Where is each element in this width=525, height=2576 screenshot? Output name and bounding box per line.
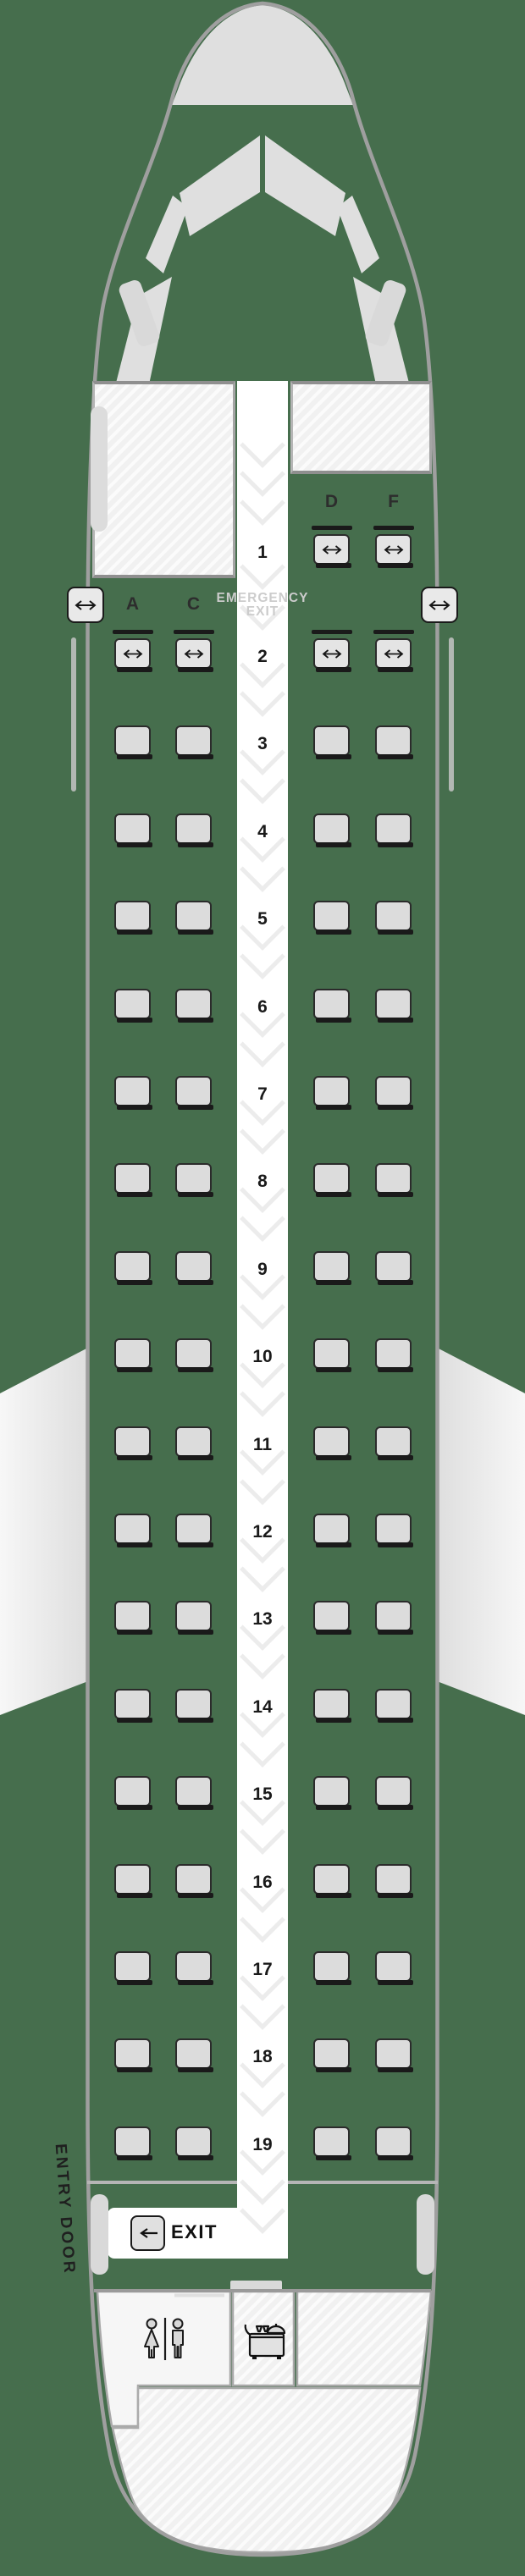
front-galley-right	[290, 381, 432, 474]
galley-cart-icon	[242, 2318, 291, 2366]
seat-7C[interactable]	[175, 1076, 212, 1106]
seat-10F[interactable]	[375, 1338, 412, 1369]
seat-5F[interactable]	[375, 901, 412, 931]
right-wing	[437, 1348, 525, 1715]
rear-left-door-flap	[91, 2194, 108, 2275]
front-galley-door-tab	[91, 406, 108, 532]
bulkhead-divider	[373, 526, 414, 530]
seat-10A[interactable]	[114, 1338, 151, 1369]
seat-15F[interactable]	[375, 1776, 412, 1807]
seat-2D[interactable]	[313, 638, 350, 669]
seat-6D[interactable]	[313, 989, 350, 1019]
bulkhead-divider	[312, 526, 352, 530]
seat-17D[interactable]	[313, 1951, 350, 1982]
seat-4A[interactable]	[114, 814, 151, 844]
row-number-10: 10	[237, 1347, 288, 1367]
seat-12D[interactable]	[313, 1514, 350, 1544]
seat-1D[interactable]	[313, 534, 350, 565]
seat-8F[interactable]	[375, 1163, 412, 1194]
seat-3A[interactable]	[114, 725, 151, 756]
left-wing	[0, 1348, 88, 1715]
seat-19C[interactable]	[175, 2126, 212, 2157]
double-arrow-icon	[383, 544, 405, 555]
lavatory-icon	[141, 2316, 193, 2368]
nose-cone	[172, 5, 353, 105]
seat-10C[interactable]	[175, 1338, 212, 1369]
row-number-9: 9	[237, 1260, 288, 1280]
left-arrow-icon	[137, 2227, 159, 2239]
seat-4D[interactable]	[313, 814, 350, 844]
column-label-D: D	[319, 492, 345, 512]
column-label-A: A	[120, 594, 146, 615]
seat-5D[interactable]	[313, 901, 350, 931]
seat-5A[interactable]	[114, 901, 151, 931]
seat-11A[interactable]	[114, 1426, 151, 1457]
seat-2A[interactable]	[114, 638, 151, 669]
seat-9A[interactable]	[114, 1251, 151, 1282]
emergency-exit-label-line1: EMERGENCY	[195, 592, 330, 605]
row-number-16: 16	[237, 1873, 288, 1893]
seat-12C[interactable]	[175, 1514, 212, 1544]
seat-14D[interactable]	[313, 1689, 350, 1719]
row-number-14: 14	[237, 1697, 288, 1718]
row-number-5: 5	[237, 909, 288, 929]
row-number-15: 15	[237, 1784, 288, 1805]
emergency-exit-label: EMERGENCY EXIT	[195, 592, 330, 619]
seat-15C[interactable]	[175, 1776, 212, 1807]
seat-6A[interactable]	[114, 989, 151, 1019]
row-number-7: 7	[237, 1084, 288, 1105]
seat-11F[interactable]	[375, 1426, 412, 1457]
rear-exit-sign-box	[130, 2215, 165, 2251]
seat-12A[interactable]	[114, 1514, 151, 1544]
double-arrow-icon	[321, 648, 343, 659]
rear-right-door-flap	[417, 2194, 434, 2275]
rear-bulkhead-line-left	[87, 2181, 237, 2184]
seat-3C[interactable]	[175, 725, 212, 756]
seat-18D[interactable]	[313, 2038, 350, 2069]
seat-7A[interactable]	[114, 1076, 151, 1106]
lavatory-shelf	[174, 2294, 224, 2297]
double-arrow-icon	[383, 648, 405, 659]
seat-3F[interactable]	[375, 725, 412, 756]
rear-galley-right	[297, 2292, 431, 2386]
seat-17A[interactable]	[114, 1951, 151, 1982]
seat-15D[interactable]	[313, 1776, 350, 1807]
seat-15A[interactable]	[114, 1776, 151, 1807]
seat-7D[interactable]	[313, 1076, 350, 1106]
seat-17F[interactable]	[375, 1951, 412, 1982]
row-number-3: 3	[237, 734, 288, 754]
column-label-C: C	[181, 594, 207, 615]
row-number-18: 18	[237, 2047, 288, 2067]
seat-9F[interactable]	[375, 1251, 412, 1282]
column-label-F: F	[381, 492, 406, 512]
rear-exit-label: EXIT	[171, 2221, 218, 2243]
row-number-17: 17	[237, 1960, 288, 1980]
double-arrow-icon	[428, 599, 451, 611]
emergency-exit-label-line2: EXIT	[195, 605, 330, 619]
bulkhead-divider	[373, 630, 414, 634]
seat-18F[interactable]	[375, 2038, 412, 2069]
seat-13F[interactable]	[375, 1601, 412, 1631]
front-galley-left	[92, 381, 235, 578]
emergency-exit-marker-left	[67, 587, 104, 623]
row-number-2: 2	[237, 647, 288, 667]
seat-19F[interactable]	[375, 2126, 412, 2157]
seat-16D[interactable]	[313, 1864, 350, 1895]
seat-19A[interactable]	[114, 2126, 151, 2157]
seat-12F[interactable]	[375, 1514, 412, 1544]
double-arrow-icon	[74, 599, 97, 611]
left-exit-door-outline	[71, 637, 76, 792]
seat-4F[interactable]	[375, 814, 412, 844]
bulkhead-divider	[174, 630, 214, 634]
seat-2F[interactable]	[375, 638, 412, 669]
seat-7F[interactable]	[375, 1076, 412, 1106]
seat-1F[interactable]	[375, 534, 412, 565]
seat-6C[interactable]	[175, 989, 212, 1019]
row-number-6: 6	[237, 997, 288, 1018]
seat-18C[interactable]	[175, 2038, 212, 2069]
seat-4C[interactable]	[175, 814, 212, 844]
row-number-19: 19	[237, 2135, 288, 2155]
aircraft-seat-map: EMERGENCY EXIT EXIT ENTRY DOOR	[0, 0, 525, 2576]
bulkhead-divider	[312, 630, 352, 634]
seat-10D[interactable]	[313, 1338, 350, 1369]
seat-13D[interactable]	[313, 1601, 350, 1631]
seat-16A[interactable]	[114, 1864, 151, 1895]
double-arrow-icon	[321, 544, 343, 555]
bulkhead-divider	[113, 630, 153, 634]
row-number-13: 13	[237, 1609, 288, 1630]
seat-2C[interactable]	[175, 638, 212, 669]
seat-11D[interactable]	[313, 1426, 350, 1457]
seat-16F[interactable]	[375, 1864, 412, 1895]
double-arrow-icon	[183, 648, 205, 659]
row-number-1: 1	[237, 543, 288, 563]
seat-8D[interactable]	[313, 1163, 350, 1194]
row-number-11: 11	[237, 1435, 288, 1455]
row-number-8: 8	[237, 1172, 288, 1192]
double-arrow-icon	[122, 648, 144, 659]
emergency-exit-marker-right	[421, 587, 458, 623]
seat-13C[interactable]	[175, 1601, 212, 1631]
seat-6F[interactable]	[375, 989, 412, 1019]
rear-bulkhead-line-right	[288, 2181, 438, 2184]
seat-18A[interactable]	[114, 2038, 151, 2069]
seat-14A[interactable]	[114, 1689, 151, 1719]
row-number-12: 12	[237, 1522, 288, 1542]
seat-8C[interactable]	[175, 1163, 212, 1194]
seat-13A[interactable]	[114, 1601, 151, 1631]
row-number-4: 4	[237, 822, 288, 842]
seat-9D[interactable]	[313, 1251, 350, 1282]
seat-3D[interactable]	[313, 725, 350, 756]
seat-14F[interactable]	[375, 1689, 412, 1719]
seat-17C[interactable]	[175, 1951, 212, 1982]
seat-11C[interactable]	[175, 1426, 212, 1457]
seat-14C[interactable]	[175, 1689, 212, 1719]
seat-8A[interactable]	[114, 1163, 151, 1194]
seat-9C[interactable]	[175, 1251, 212, 1282]
seat-19D[interactable]	[313, 2126, 350, 2157]
seat-16C[interactable]	[175, 1864, 212, 1895]
right-exit-door-outline	[449, 637, 454, 792]
seat-5C[interactable]	[175, 901, 212, 931]
